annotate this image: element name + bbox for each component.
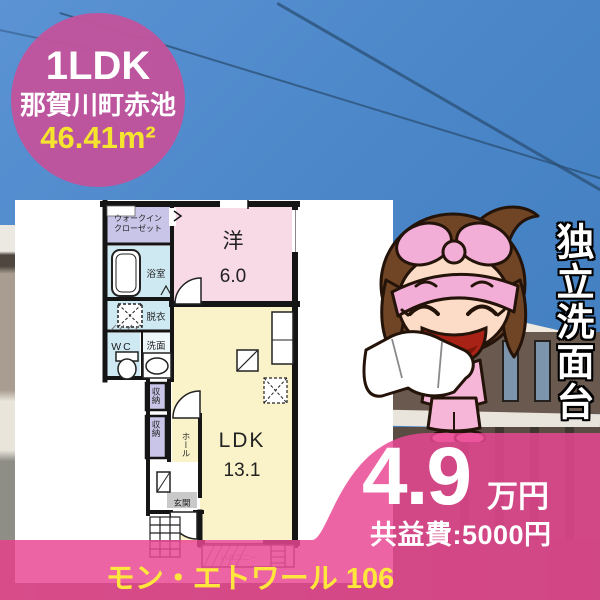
mascot-girl-illustration	[358, 202, 543, 442]
wic-door-gap	[169, 208, 176, 226]
label-western-size: 6.0	[220, 266, 246, 287]
floorplan-image: ウォークイン クローゼット 浴室 脱衣 WC 洗面 洋 6.0 LDK 13.1…	[15, 200, 393, 583]
stairs-icon	[150, 517, 180, 557]
label-entrance: 玄関	[173, 498, 190, 508]
label-storage-1: 収納	[151, 386, 161, 405]
label-washstand: 洗面	[146, 340, 165, 352]
kitchen-counter-icon	[272, 312, 293, 364]
label-storage-2: 収納	[151, 419, 161, 438]
label-dressing: 脱衣	[146, 311, 166, 323]
shoe-cabinet-icon	[157, 472, 170, 492]
label-walk-in-closet-2: クローゼット	[114, 223, 162, 233]
toilet-icon	[116, 352, 138, 379]
badge-location: 那賀川町赤池	[20, 91, 176, 119]
label-bathroom: 浴室	[146, 268, 165, 280]
feature-text-vertical: 独立洗面台	[544, 222, 599, 432]
price-unit: 万円	[487, 471, 549, 516]
stove-icon	[237, 350, 258, 371]
label-walk-in-closet: ウォークイン	[114, 214, 162, 223]
floorplan-drawing: ウォークイン クローゼット 浴室 脱衣 WC 洗面 洋 6.0 LDK 13.1…	[15, 200, 393, 583]
label-ldk-size: 13.1	[224, 460, 261, 481]
badge-circle: 1LDK 那賀川町赤池 46.41m²	[11, 13, 185, 187]
washing-machine-icon	[118, 304, 142, 327]
sink-icon	[143, 353, 171, 378]
badge-layout-type: 1LDK	[46, 45, 150, 88]
refrigerator-icon	[264, 378, 287, 403]
bathtub-icon	[112, 250, 140, 296]
label-wc: WC	[111, 341, 133, 353]
label-hall: ホール	[181, 432, 191, 458]
common-fee: 共益費:5000円	[370, 513, 552, 552]
window-top	[220, 201, 248, 208]
label-ldk: LDK	[219, 429, 266, 452]
badge-area: 46.41m²	[40, 121, 155, 154]
label-western-room: 洋	[223, 230, 244, 253]
price-amount: 4.9	[362, 436, 470, 518]
bow-knot	[443, 241, 465, 263]
property-name: モン・エトワール 106	[0, 555, 500, 597]
